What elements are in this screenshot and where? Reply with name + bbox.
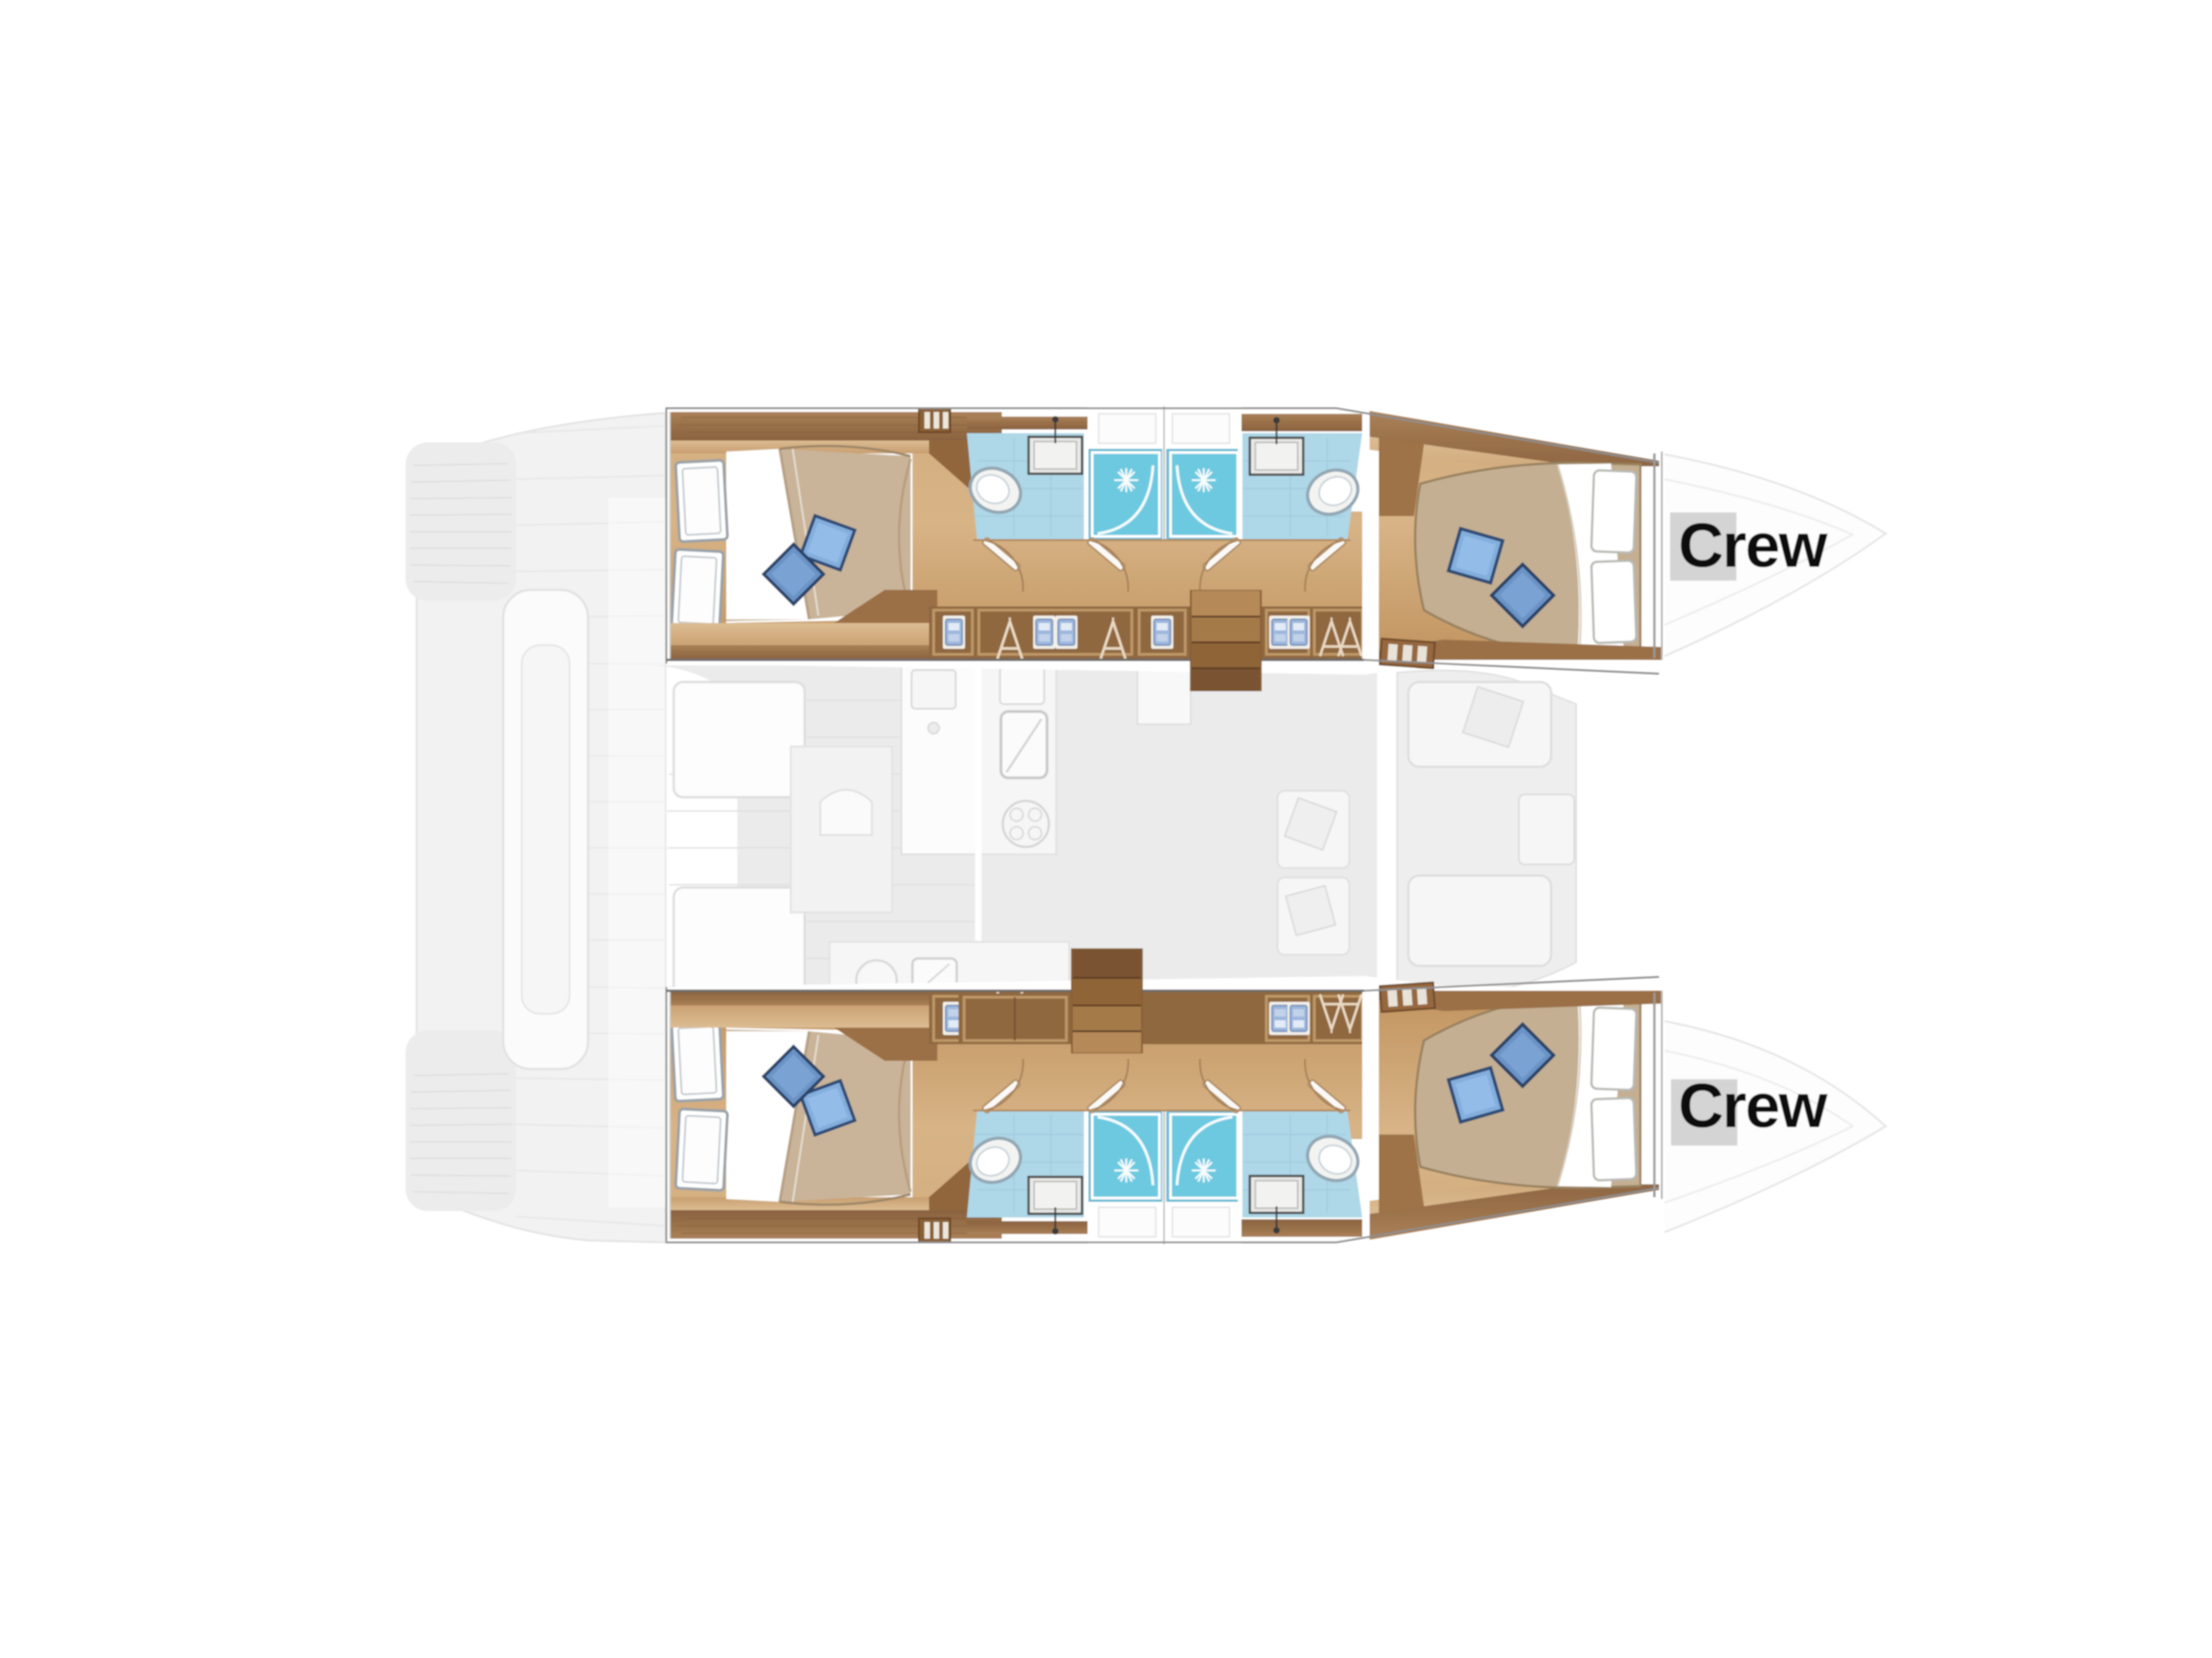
svg-text:Crew: Crew bbox=[1678, 511, 1829, 581]
svg-text:Crew: Crew bbox=[1678, 1071, 1829, 1141]
